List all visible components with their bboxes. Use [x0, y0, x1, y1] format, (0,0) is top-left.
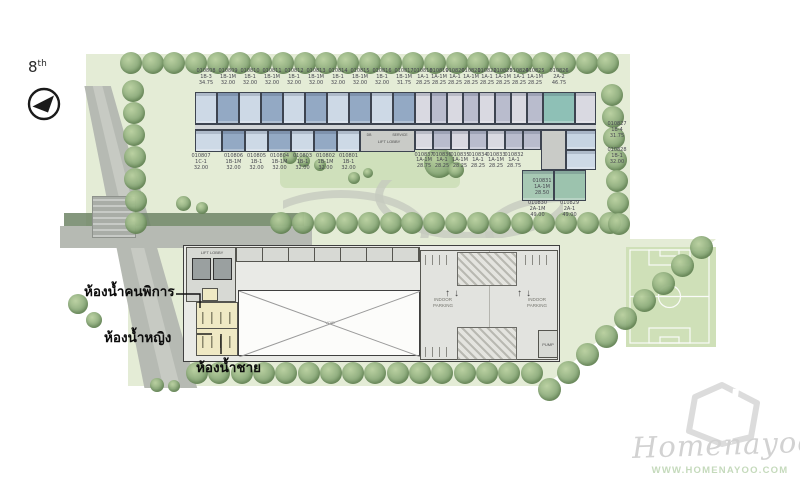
- ramp-bottom: [457, 327, 517, 360]
- unit-label: 0108311A-1M28.50: [521, 179, 563, 197]
- unit-label: 0108271B-431.75: [598, 122, 636, 140]
- restroom-block: [196, 302, 238, 356]
- parking-arrow-down-icon: ↓: [526, 289, 531, 299]
- lower-lift-lobby-label: LIFT LOBBY: [191, 250, 233, 255]
- floor-indicator: 8th: [28, 58, 47, 76]
- pump-room: PUMP: [538, 330, 558, 358]
- floor-suffix: th: [38, 59, 47, 69]
- parking-label-right: INDOOR PARKING: [519, 297, 555, 308]
- unit-label: 0108262A-246.75: [545, 69, 573, 87]
- unit-label: 0108292A-149.00: [553, 201, 586, 219]
- floor-number: 8: [28, 58, 38, 76]
- north-arrow-icon: [26, 86, 62, 122]
- label-toilet-female: ห้องน้ำหญิง: [104, 326, 171, 348]
- unit-label: 0108321A-128.75: [503, 153, 525, 171]
- lift-shaft: [213, 258, 232, 280]
- lower-top-rooms: [236, 247, 420, 262]
- unit-label: 0108011B-132.00: [337, 154, 361, 172]
- unit-label: 0108051B-132.00: [245, 154, 269, 172]
- unit-label: 0108041B-1M32.00: [268, 154, 292, 172]
- floor-plan-canvas: LIFT LOBBY DB SERVICE 0108081B-334.75010…: [0, 0, 800, 485]
- restroom-disabled: [202, 288, 218, 301]
- watermark-brand: Homenayoo: [631, 425, 800, 465]
- main-hall: VOID: [238, 290, 420, 356]
- label-toilet-disabled: ห้องน้ำคนพิการ: [84, 280, 175, 302]
- label-toilet-male: ห้องน้ำชาย: [196, 356, 261, 378]
- lift-shaft: [192, 258, 211, 280]
- unit-label: 0108031B-132.00: [291, 154, 315, 172]
- unit-label: 0108281B-132.00: [598, 148, 636, 166]
- unit-label: 0108302A-1M49.00: [521, 201, 554, 219]
- parking-arrow-down-icon: ↓: [454, 289, 459, 299]
- parking-arrow-up-icon: ↑: [445, 289, 450, 299]
- void-label: VOID: [315, 320, 345, 325]
- ramp-top: [457, 252, 517, 286]
- unit-label: 0108071C-132.00: [186, 154, 216, 172]
- parking-arrow-up-icon: ↑: [517, 289, 522, 299]
- unit-label: 0108021B-1M32.00: [314, 154, 338, 172]
- unit-label: 0108061B-1M32.00: [222, 154, 246, 172]
- watermark-url: WWW.HOMENAYOO.COM: [650, 465, 790, 476]
- pump-label: PUMP: [540, 342, 556, 347]
